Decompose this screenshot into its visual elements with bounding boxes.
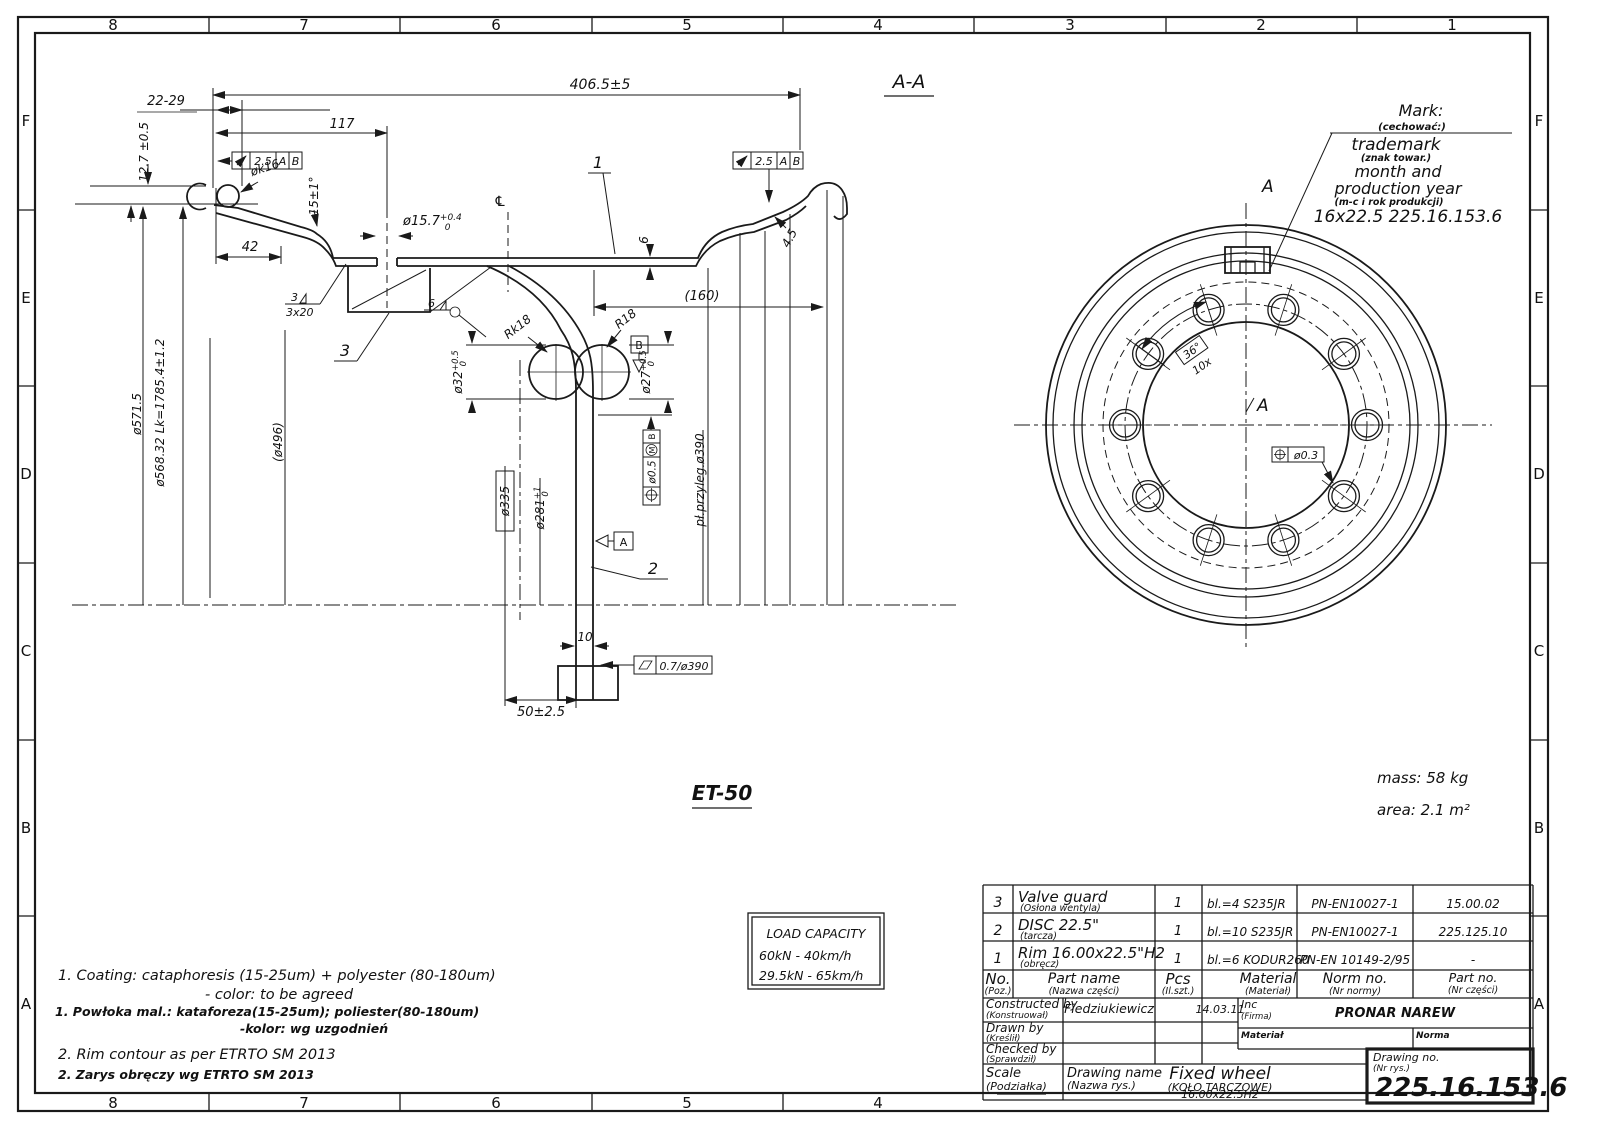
note-color-en: - color: to be agreed (205, 987, 354, 1003)
zone-label: 6 (491, 16, 501, 34)
datum-ref: B (648, 433, 658, 439)
tolerance-value: 2.5 (755, 155, 773, 168)
dim-text: ø335 (498, 486, 512, 517)
extension-lines (143, 88, 843, 708)
dim-22-29: 22-29 (137, 94, 330, 186)
company-label-pl: (Firma) (1241, 1012, 1272, 1022)
dim-text: 406.5±5 (570, 77, 631, 93)
part-row-partno: 15.00.02 (1446, 897, 1499, 911)
note-coating-pl: 1. Powłoka mal.: kataforeza(15-25um); po… (55, 1004, 479, 1019)
drawing-number-box: Drawing no. (Nr rys.) 225.16.153.6 (1367, 1049, 1567, 1103)
part-row-norm: PN-EN 10149-2/95 (1300, 953, 1410, 967)
runout-frame-right: 2.5 A B (733, 152, 803, 202)
tolerance-value: 2.5 (254, 155, 272, 168)
dim-text: 12.7 ±0.5 (137, 122, 151, 182)
dim-text: R18 (612, 306, 640, 332)
position-tolerance-frame: ø0.5 M B (643, 417, 660, 505)
scale-label-pl: (Podziałka) (986, 1080, 1047, 1093)
scale-label: Scale (986, 1066, 1021, 1081)
balloon-label: 1 (593, 153, 603, 172)
dim-text: 6 (637, 236, 651, 244)
section-title: A-A (884, 71, 934, 96)
modifier-m: M (648, 446, 657, 453)
part-row-material: bl.=6 KODUR260 (1207, 953, 1310, 967)
part-row-norm: PN-EN10027-1 (1311, 925, 1398, 939)
col-header-pl: (Materiał) (1245, 986, 1291, 997)
part-row-partno: 225.125.10 (1439, 925, 1508, 939)
col-header: Part name (1048, 971, 1120, 987)
weld-size: 6 (428, 297, 435, 310)
zone-label: C (1534, 642, 1544, 660)
dim-text: 22-29 (147, 94, 185, 109)
zone-label: 6 (491, 1094, 501, 1112)
part-row-material: bl.=10 S235JR (1207, 925, 1293, 939)
dim-text: 50±2.5 (517, 705, 565, 720)
zone-label: B (21, 819, 31, 837)
dim-36deg: 36° 10x (1135, 294, 1215, 377)
note-coating-en: 1. Coating: cataphoresis (15-25um) + pol… (58, 968, 496, 984)
datum-label: A (620, 536, 628, 549)
dim-text: 117 (330, 117, 356, 132)
col-header-pl: (Poz.) (985, 986, 1012, 997)
load-capacity-row2: 29.5kN - 65km/h (759, 968, 863, 983)
mark-note: Mark: (cechować:) trademark (znak towar.… (1269, 101, 1512, 271)
tolerance-value: ø0.3 (1293, 449, 1318, 462)
part-row-material: bl.=4 S235JR (1207, 897, 1286, 911)
zone-label: F (22, 112, 31, 130)
dim-15deg: 15±1° (307, 177, 321, 226)
et-label: ET-50 (692, 781, 753, 808)
mount-face-label: pł.przyleg.ø390 (693, 433, 707, 528)
zone-label: 3 (1065, 16, 1075, 34)
datum-ref: B (292, 155, 300, 168)
balloon-label: 3 (340, 341, 350, 360)
note-contour-pl: 2. Zarys obręczy wg ETRTO SM 2013 (58, 1067, 314, 1082)
datum-ref: A (278, 155, 287, 168)
zone-label: 7 (299, 1094, 309, 1112)
zone-label: D (20, 465, 32, 483)
col-header-pl: (Nr części) (1448, 985, 1498, 996)
weld-6: 6 (424, 297, 486, 337)
weld-note: 3x20 (286, 306, 314, 319)
col-header-pl: (Nr normy) (1329, 986, 1381, 997)
part-row-name-pl: (obręcz) (1020, 959, 1059, 970)
dim-text: ø568.32 (153, 437, 167, 487)
note-contour-en: 2. Rim contour as per ETRTO SM 2013 (58, 1047, 336, 1063)
material-label: Materiał (1241, 1031, 1285, 1041)
drawn-by-label: Drawn by (986, 1021, 1044, 1035)
product-size: 16.00x22.5H2 (1181, 1088, 1259, 1101)
position-tolerance-03: ø0.3 (1272, 447, 1333, 483)
dim-281: ø281+10 (533, 487, 551, 531)
col-header: Norm no. (1323, 971, 1388, 987)
part-row-pcs: 1 (1174, 896, 1182, 911)
front-view: A A 36° 10x ø0.3 Mark: (cechować: (1014, 101, 1512, 819)
mark-line3: production year (1333, 179, 1462, 198)
dim-text: 10 (577, 630, 593, 644)
dim-6: 6 (637, 236, 651, 278)
part-row-no: 1 (994, 951, 1003, 967)
mark-line4: 16x22.5 225.16.153.6 (1314, 207, 1503, 227)
part-row-pcs: 1 (1174, 924, 1182, 939)
section-letter-mid: A (1256, 396, 1269, 416)
valve-guard-window (1225, 247, 1270, 273)
part-row-name-pl: (Osłona wentyla) (1020, 903, 1101, 914)
drawing-name-label-pl: (Nazwa rys.) (1067, 1079, 1136, 1092)
mark-title: Mark: (1399, 101, 1444, 120)
balloon-3: 3 (334, 313, 389, 361)
dim-15-7: ø15.7+0.40 (360, 213, 462, 236)
tolerance-value: ø0.5 (647, 460, 659, 484)
zone-label: F (1535, 112, 1544, 130)
datum-a-flag: A (596, 532, 633, 550)
constructed-by-label-pl: (Konstruował) (986, 1011, 1048, 1021)
area-label: area: 2.1 m² (1377, 801, 1470, 819)
tolerance-value: 0.7/ø390 (660, 660, 709, 673)
mark-title-pl: (cechować:) (1378, 121, 1446, 133)
col-header: Part no. (1449, 970, 1498, 985)
zone-label: 8 (108, 16, 118, 34)
checked-by-label: Checked by (986, 1042, 1057, 1056)
constructed-by-name: Fiedziukiewicz (1064, 1001, 1154, 1016)
zone-label: 1 (1447, 16, 1457, 34)
dim-text: ø32+0.50 (451, 350, 469, 394)
zone-label: 4 (873, 1094, 883, 1112)
dim-text: Rk18 (501, 312, 534, 342)
zone-label: B (1534, 819, 1544, 837)
weld-size: 3 (291, 291, 298, 304)
dim-12-7: 12.7 ±0.5 (131, 122, 151, 222)
zone-label: 4 (873, 16, 883, 34)
checked-by-label-pl: (Sprawdził) (986, 1055, 1037, 1065)
norma-label: Norma (1416, 1031, 1450, 1041)
balloon-2: 2 (591, 559, 668, 579)
zone-label: 5 (682, 1094, 692, 1112)
zone-label: 5 (682, 16, 692, 34)
load-capacity-row1: 60kN - 40km/h (759, 948, 851, 963)
centerline-symbol: ℄ (494, 194, 507, 210)
zone-label: 7 (299, 16, 309, 34)
dim-text: ø571.5 (130, 393, 144, 436)
dim-rk18: Rk18 (501, 312, 547, 352)
drawing-sheet: 8 7 6 5 4 3 2 1 8 7 6 5 4 F E D C B A F … (0, 0, 1600, 1130)
zone-label: E (1534, 289, 1543, 307)
dim-text: 4.5 (779, 226, 800, 249)
rim-profile (75, 183, 847, 266)
dim-text: Lk=1785.4±1.2 (153, 339, 167, 434)
zone-label: C (21, 642, 31, 660)
section-letter-top: A (1261, 177, 1274, 197)
zone-label: 8 (108, 1094, 118, 1112)
dim-10: 10 (560, 630, 609, 646)
zone-label: E (21, 289, 30, 307)
drawing-no-label: Drawing no. (1373, 1051, 1439, 1064)
title-block: 3 Valve guard (Osłona wentyla) 1 bl.=4 S… (983, 885, 1567, 1103)
part-row-no: 3 (994, 895, 1003, 911)
dim-42: 42 (216, 188, 281, 264)
date-value: 14.03.11 (1196, 1003, 1245, 1016)
section-title-text: A-A (891, 71, 926, 93)
datum-ref: B (793, 155, 801, 168)
dim-text: ø27+0.50 (639, 350, 657, 394)
part-row-pcs: 1 (1174, 952, 1182, 967)
dim-27: ø27+0.50 (629, 333, 674, 411)
weld-3x20: 3 3x20 (285, 264, 346, 319)
dim-text: (ø496) (271, 422, 285, 462)
balloon-1: 1 (588, 153, 615, 254)
load-capacity-box: LOAD CAPACITY 60kN - 40km/h 29.5kN - 65k… (748, 913, 884, 989)
runout-frame-left: 2.5 A B (218, 152, 302, 169)
dim-text: 42 (242, 240, 259, 255)
dim-text: ø15.7+0.40 (402, 213, 462, 233)
zone-label: 2 (1256, 16, 1266, 34)
part-row-name-pl: (tarcza) (1020, 931, 1057, 942)
col-header-pl: (Il.szt.) (1162, 986, 1195, 997)
part-row-norm: PN-EN10027-1 (1311, 897, 1398, 911)
mark-line1: trademark (1351, 135, 1441, 155)
notes: 1. Coating: cataphoresis (15-25um) + pol… (55, 968, 496, 1082)
dim-text: 15±1° (307, 177, 321, 216)
zone-label: D (1533, 465, 1545, 483)
dim-text: ø281+10 (533, 487, 551, 531)
zone-label: A (21, 995, 32, 1013)
mass-label: mass: 58 kg (1377, 769, 1468, 787)
zone-label: A (1534, 995, 1545, 1013)
balloon-label: 2 (648, 559, 658, 578)
part-row-partno: - (1471, 953, 1475, 967)
datum-ref: A (779, 155, 788, 168)
et-text: ET-50 (692, 781, 753, 805)
dim-text: (160) (685, 289, 720, 304)
col-header-pl: (Nazwa części) (1049, 986, 1120, 997)
dim-overall: 406.5±5 (213, 77, 800, 95)
company-name: PRONAR NAREW (1335, 1006, 1456, 1021)
section-view: 406.5±5 22-29 117 12.7 ±0.5 øk16 (72, 71, 958, 808)
dim-50: 50±2.5 (505, 700, 578, 720)
part-row-no: 2 (994, 923, 1003, 939)
drawing-no-value: 225.16.153.6 (1375, 1073, 1567, 1103)
company-label: Inc (1241, 998, 1257, 1011)
col-header: Material (1240, 971, 1297, 987)
note-color-pl: -kolor: wg uzgodnień (240, 1021, 388, 1036)
load-capacity-title: LOAD CAPACITY (767, 926, 867, 941)
